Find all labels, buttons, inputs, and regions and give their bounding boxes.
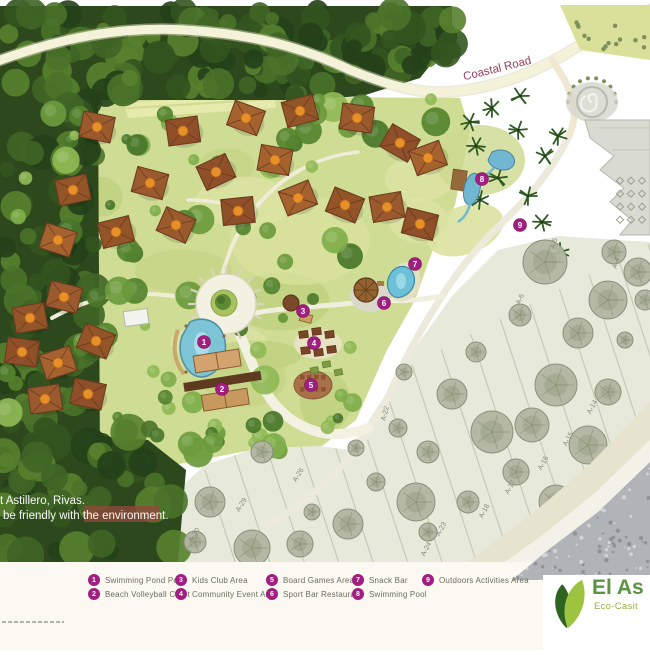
legend-item-4: 4Community Event Area (175, 588, 278, 600)
svg-text:3: 3 (301, 307, 306, 316)
legend-label: Kids Club Area (192, 576, 248, 585)
legend-badge-1: 1 (88, 574, 100, 586)
legend-item-7: 7Snack Bar (352, 574, 408, 586)
logo-tagline: Eco-Casit (594, 601, 638, 612)
fine-print (2, 621, 64, 623)
svg-text:1: 1 (202, 338, 207, 347)
legend-badge-9: 9 (422, 574, 434, 586)
legend-label: Community Event Area (192, 590, 278, 599)
svg-text:8: 8 (480, 175, 485, 184)
legend-badge-3: 3 (175, 574, 187, 586)
legend-label: Swimming Pool (369, 590, 427, 599)
map-marker-8: 8 (476, 173, 489, 186)
clubhouse-building (123, 308, 149, 326)
map-marker-6: 6 (378, 297, 391, 310)
legend-badge-8: 8 (352, 588, 364, 600)
site-plan-poster: Coastal Road t Astillero, Rivas. be frie… (0, 0, 650, 650)
svg-text:4: 4 (312, 339, 317, 348)
legend-badge-2: 2 (88, 588, 100, 600)
map-marker-1: 1 (198, 336, 211, 349)
leaf-logo-icon (549, 577, 593, 631)
map-marker-4: 4 (308, 337, 321, 350)
legend-badge-4: 4 (175, 588, 187, 600)
legend-item-6: 6Sport Bar Restaurant (266, 588, 362, 600)
logo: El As Eco-Casit (543, 575, 650, 650)
svg-text:2: 2 (220, 385, 225, 394)
map-marker-5: 5 (305, 379, 318, 392)
location-text-line2: be friendly with the environment. (3, 510, 169, 522)
legend-label: Board Games Area (283, 576, 354, 585)
logo-name: El As (592, 576, 644, 600)
legend-badge-6: 6 (266, 588, 278, 600)
resort-site-map: Coastal Road t Astillero, Rivas. be frie… (0, 0, 650, 650)
legend-item-9: 9Outdoors Activities Area (422, 574, 529, 586)
legend-badge-7: 7 (352, 574, 364, 586)
legend-item-8: 8Swimming Pool (352, 588, 427, 600)
svg-text:9: 9 (518, 221, 523, 230)
map-marker-9: 9 (514, 219, 527, 232)
map-marker-7: 7 (409, 258, 422, 271)
legend-badge-5: 5 (266, 574, 278, 586)
svg-text:6: 6 (382, 299, 387, 308)
legend-item-3: 3Kids Club Area (175, 574, 248, 586)
svg-text:7: 7 (413, 260, 418, 269)
svg-text:5: 5 (309, 381, 314, 390)
legend-label: Swimming Pond Pool (105, 576, 185, 585)
legend-item-5: 5Board Games Area (266, 574, 354, 586)
map-marker-3: 3 (297, 305, 310, 318)
location-text-line1: t Astillero, Rivas. (0, 495, 85, 507)
legend-label: Snack Bar (369, 576, 408, 585)
legend-label: Sport Bar Restaurant (283, 590, 362, 599)
map-marker-2: 2 (216, 383, 229, 396)
legend-item-1: 1Swimming Pond Pool (88, 574, 185, 586)
legend-label: Outdoors Activities Area (439, 576, 529, 585)
